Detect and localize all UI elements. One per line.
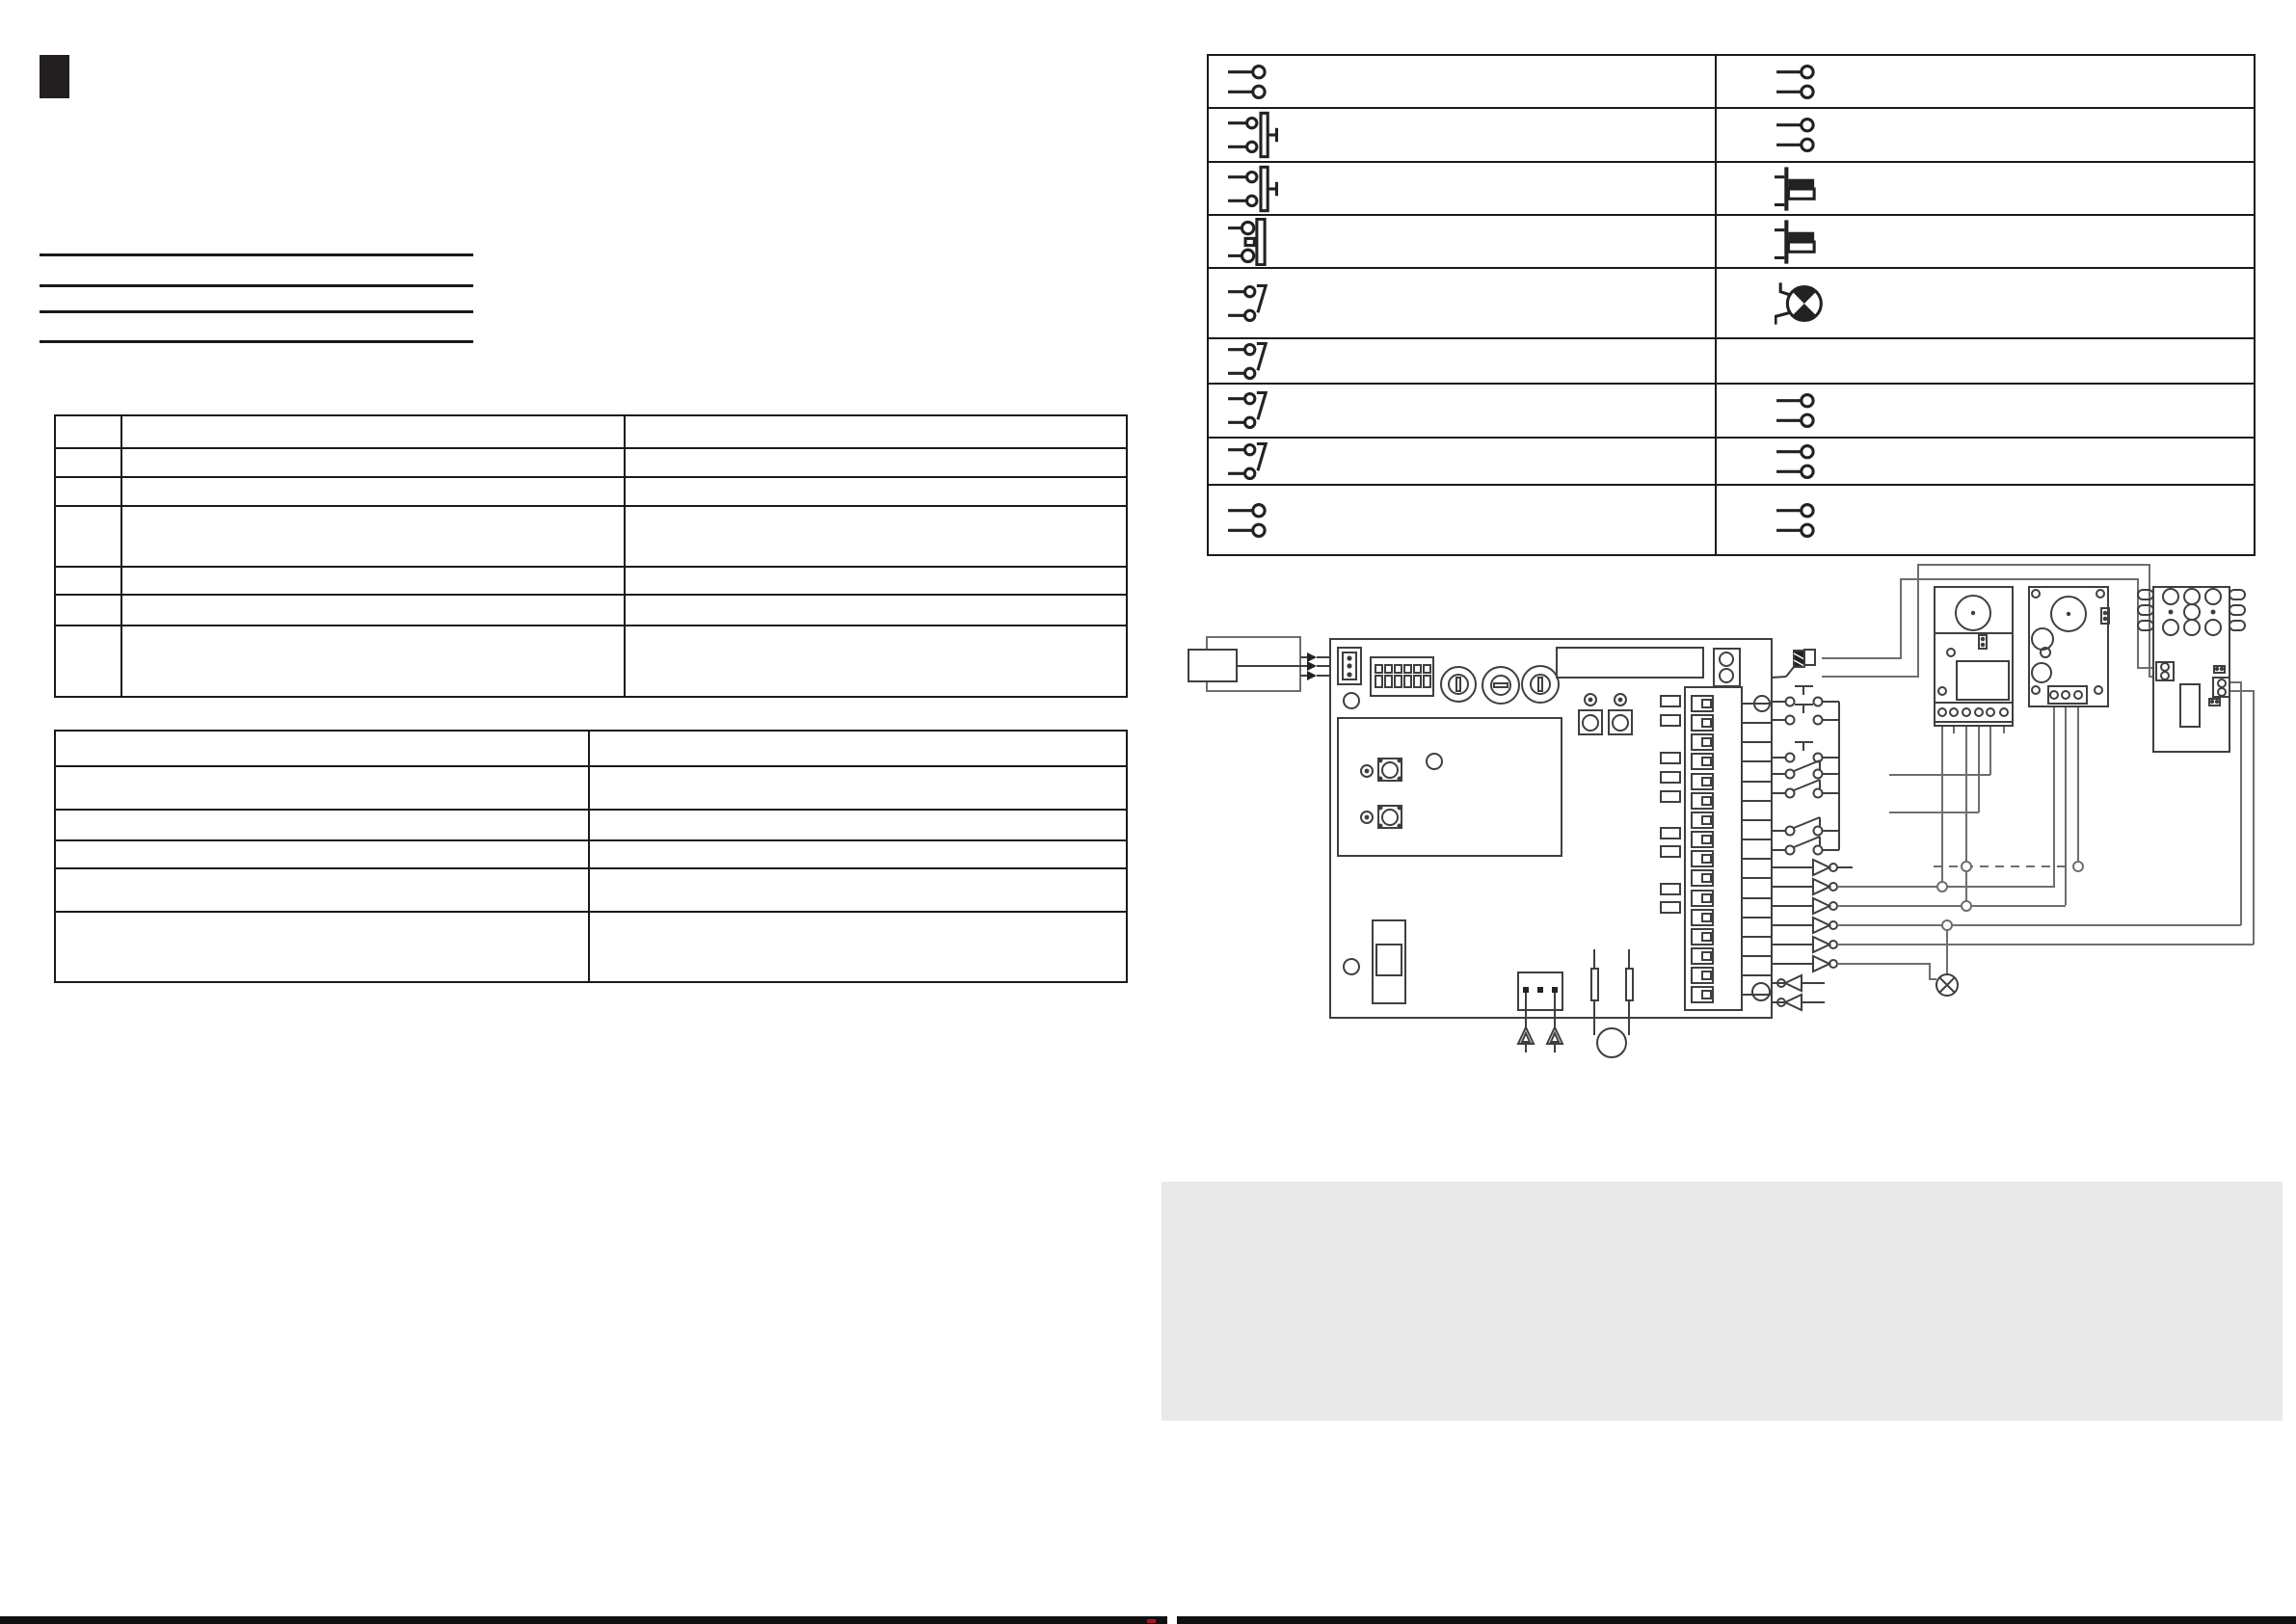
terminal-block <box>2138 587 2245 752</box>
main-control-board <box>1330 639 1772 1057</box>
footer-bar-right <box>1177 1616 2296 1624</box>
buzzer-icon <box>1597 1028 1626 1057</box>
input-driver <box>1772 975 1825 991</box>
pushbutton-contact <box>1772 742 1839 762</box>
antenna-module <box>1188 637 1339 691</box>
warning-lamp-icon <box>1936 974 1958 996</box>
switch-contact <box>1772 837 1839 855</box>
pushbutton-contact <box>1772 705 1839 725</box>
external-contacts <box>1772 686 1853 1010</box>
switch-contact <box>1772 780 1839 798</box>
junction-node <box>2073 862 2083 871</box>
junction-node <box>1962 862 1971 871</box>
arrow-icon <box>1307 661 1317 671</box>
output-driver <box>1772 937 1837 952</box>
note-panel <box>1161 1182 2283 1421</box>
output-driver <box>1772 898 1837 914</box>
control-unit-b <box>2029 587 2109 706</box>
control-unit-a <box>1935 587 2013 726</box>
manual-page <box>0 0 2296 1624</box>
junction-node <box>1962 901 1971 911</box>
junction-node <box>1937 882 1947 892</box>
output-driver <box>1772 956 1837 972</box>
arrow-icon <box>1307 671 1317 680</box>
arrow-icon <box>1307 652 1317 662</box>
input-driver <box>1772 995 1825 1010</box>
registration-mark <box>1147 1619 1156 1623</box>
junction-node <box>1942 920 1952 930</box>
output-driver <box>1772 860 1853 875</box>
output-driver <box>1772 879 1837 894</box>
switch-contact <box>1772 817 1839 836</box>
switch-contact <box>1772 760 1839 779</box>
motor-plug-hatched <box>1772 650 1815 678</box>
footer-bar-left <box>0 1616 1167 1624</box>
pushbutton-contact <box>1772 686 1839 706</box>
output-driver <box>1772 918 1837 933</box>
